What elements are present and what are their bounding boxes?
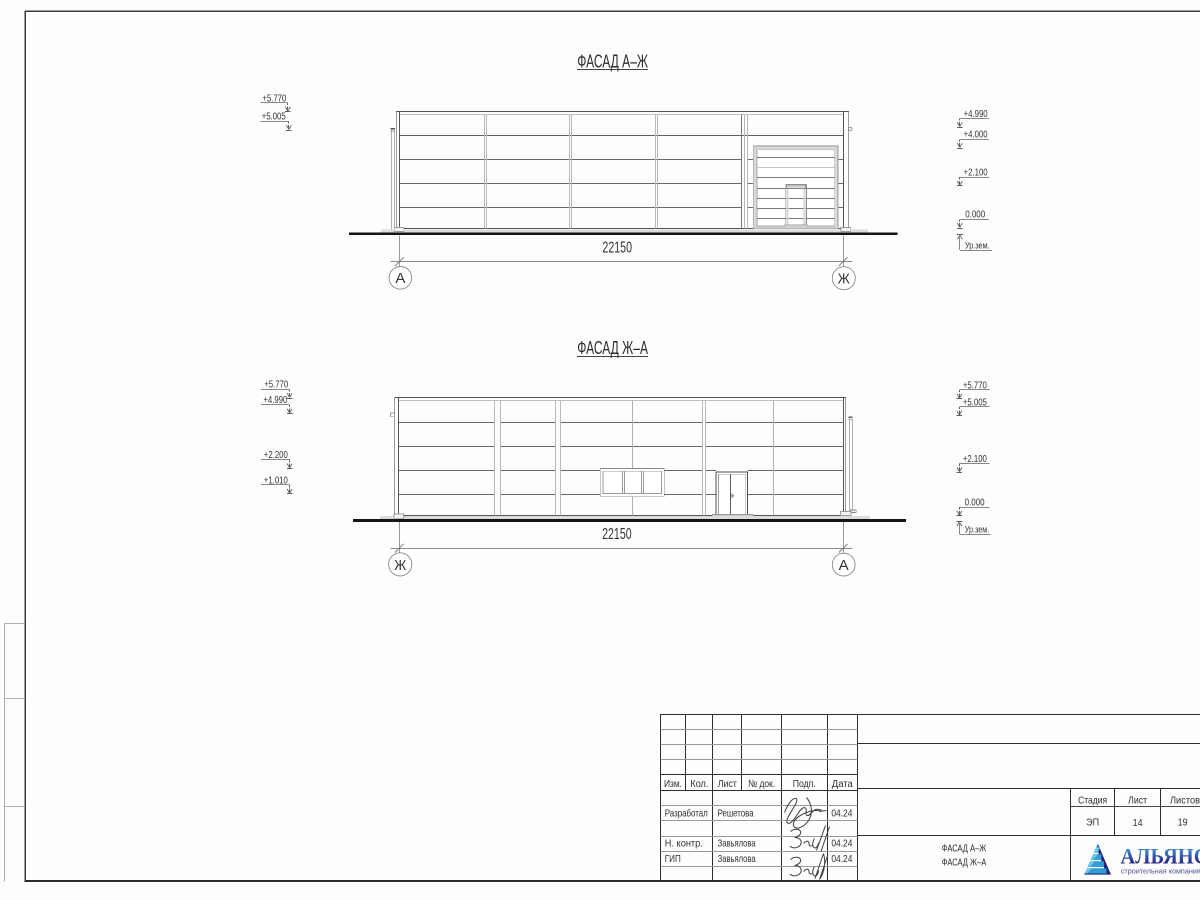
svg-text:Ур.зем.: Ур.зем.: [965, 523, 990, 534]
svg-text:ФАСАД А–Ж: ФАСАД А–Ж: [577, 51, 648, 71]
svg-text:+2.100: +2.100: [964, 168, 988, 179]
svg-text:04.24: 04.24: [831, 839, 852, 850]
svg-text:22150: 22150: [602, 239, 632, 256]
svg-text:Лист: Лист: [1128, 795, 1147, 806]
svg-text:строительная компания: строительная компания: [1121, 868, 1200, 875]
svg-text:ГИП: ГИП: [665, 854, 681, 865]
svg-text:Разработал: Разработал: [665, 808, 708, 820]
svg-text:04.24: 04.24: [831, 808, 852, 819]
svg-text:Решетова: Решетова: [718, 809, 754, 820]
svg-text:Кол.: Кол.: [690, 778, 708, 790]
svg-text:А: А: [839, 558, 849, 574]
svg-text:14: 14: [1133, 817, 1143, 829]
svg-text:Ж: Ж: [394, 558, 406, 574]
svg-text:Ж: Ж: [838, 272, 850, 288]
svg-text:22150: 22150: [602, 526, 632, 543]
svg-text:19: 19: [1178, 817, 1188, 829]
svg-text:Стадия: Стадия: [1078, 795, 1107, 806]
svg-text:Н. контр.: Н. контр.: [665, 839, 703, 850]
svg-text:+5.005: +5.005: [262, 112, 286, 123]
svg-text:04.24: 04.24: [831, 854, 852, 865]
svg-text:А: А: [395, 271, 405, 287]
svg-text:Лист: Лист: [718, 778, 737, 790]
svg-text:Завьялова: Завьялова: [718, 839, 756, 850]
svg-text:ЭП: ЭП: [1086, 817, 1099, 829]
svg-text:Подп.: Подп.: [793, 778, 816, 790]
svg-text:№ док.: № док.: [748, 778, 775, 790]
svg-text:ФАСАД А–Ж: ФАСАД А–Ж: [942, 843, 987, 855]
svg-text:Завьялова: Завьялова: [718, 854, 756, 865]
svg-text:0.000: 0.000: [965, 498, 985, 509]
svg-text:Ур.зем.: Ур.зем.: [965, 239, 990, 250]
svg-text:АЛЬЯНС: АЛЬЯНС: [1121, 844, 1200, 869]
svg-text:Дата: Дата: [832, 778, 853, 790]
svg-text:Листов: Листов: [1170, 795, 1200, 806]
svg-text:Изм.: Изм.: [664, 778, 682, 790]
svg-text:ФАСАД Ж–А: ФАСАД Ж–А: [942, 857, 987, 869]
svg-text:ФАСАД Ж–А: ФАСАД Ж–А: [577, 338, 648, 358]
